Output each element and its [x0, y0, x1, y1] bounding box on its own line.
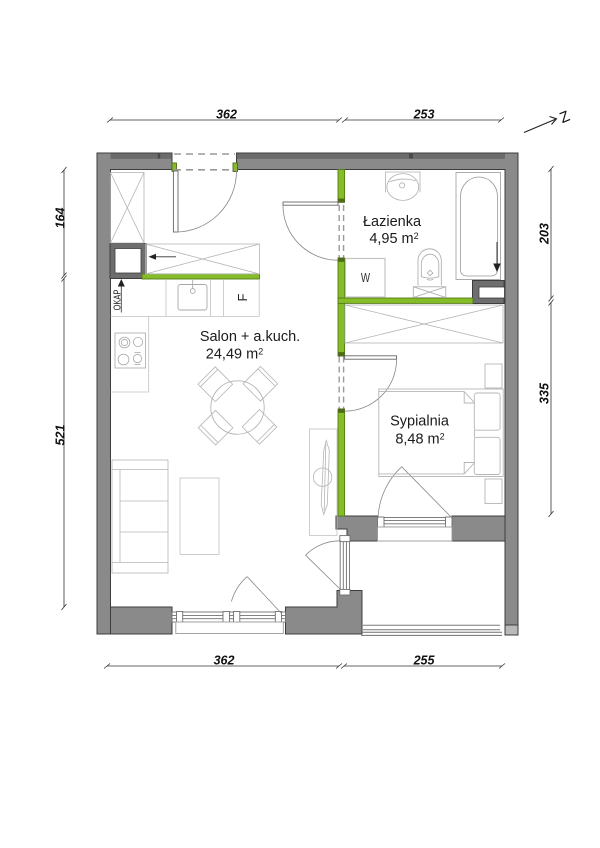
svg-text:164: 164 [54, 208, 68, 229]
svg-text:OKAP: OKAP [111, 290, 122, 311]
svg-text:335: 335 [538, 382, 552, 404]
svg-text:255: 255 [413, 654, 436, 668]
svg-text:Łazienka: Łazienka [363, 214, 422, 230]
svg-text:Sypialnia: Sypialnia [390, 414, 450, 430]
svg-text:362: 362 [216, 108, 237, 122]
svg-text:362: 362 [214, 654, 235, 668]
svg-text:F: F [235, 293, 250, 301]
svg-text:203: 203 [538, 223, 552, 245]
svg-text:4,95 m2: 4,95 m2 [369, 231, 418, 247]
svg-text:Salon + a.kuch.: Salon + a.kuch. [200, 329, 300, 345]
svg-text:253: 253 [413, 108, 435, 122]
svg-text:24,49 m2: 24,49 m2 [206, 347, 263, 363]
svg-text:521: 521 [54, 425, 68, 446]
svg-text:W: W [361, 272, 371, 285]
svg-text:8,48 m2: 8,48 m2 [395, 432, 444, 448]
